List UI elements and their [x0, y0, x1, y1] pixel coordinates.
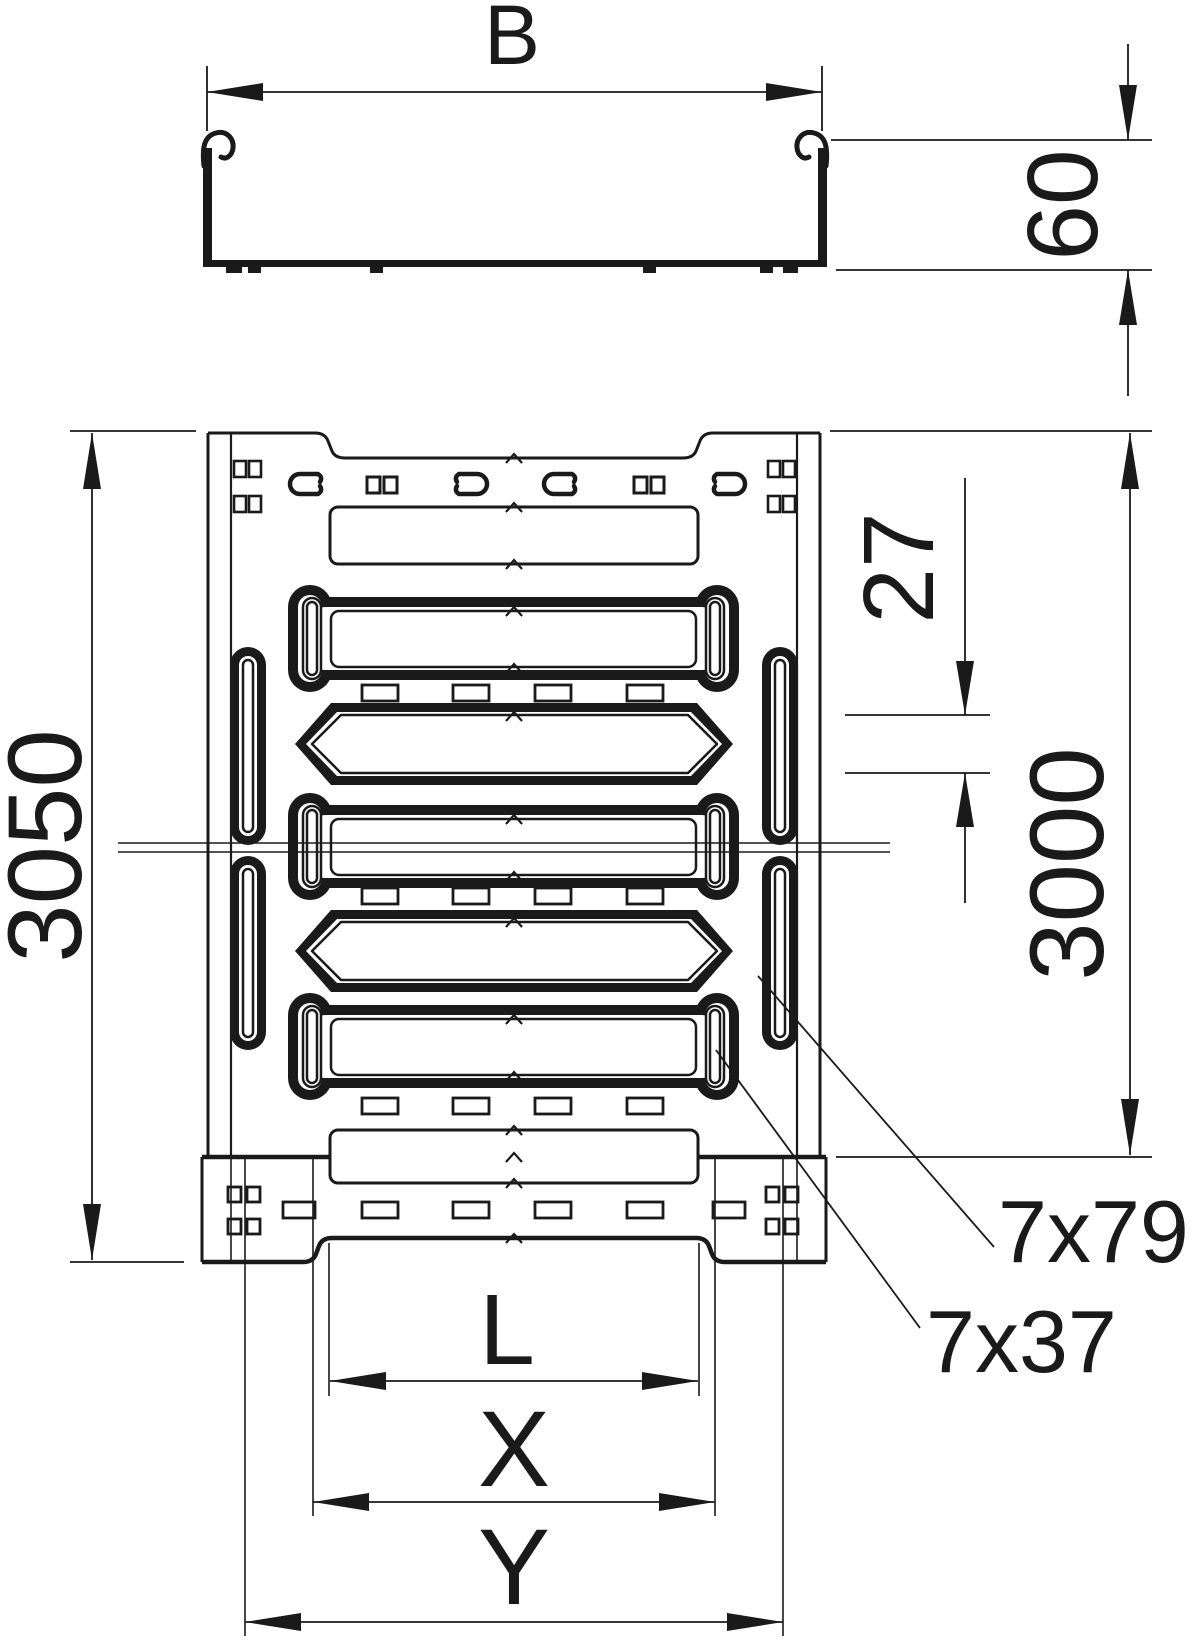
dimension-3050: 3050: [0, 431, 196, 1262]
dimension-60-label: 60: [1007, 149, 1119, 260]
plan-top-slot: [330, 507, 698, 564]
dimension-b: B: [207, 0, 822, 131]
callout-7x79-label: 7x79: [998, 1182, 1189, 1281]
drawing-canvas: B 60: [0, 0, 1201, 1640]
plan-hexagon-row-2: [295, 910, 733, 992]
plan-dumbbell-row-2: [288, 793, 739, 900]
cross-section-view: [203, 132, 827, 273]
dimension-27: 27: [843, 478, 990, 903]
plan-dumbbell-row-3: [288, 993, 739, 1100]
dimension-l-label: L: [479, 1274, 535, 1386]
section-bottom: [203, 260, 827, 267]
dimension-y-label: Y: [478, 1506, 550, 1627]
section-feet: [226, 267, 798, 273]
dimension-3050-label: 3050: [0, 729, 104, 963]
technical-drawing: B 60: [0, 0, 1201, 1640]
plan-hexagon-row-1: [295, 703, 733, 785]
plan-bottom-slot: [330, 1130, 698, 1183]
callout-7x79: 7x79: [758, 976, 1189, 1281]
dimension-l: L: [329, 1243, 699, 1396]
dimension-3000-label: 3000: [1009, 747, 1126, 981]
dimension-b-label: B: [484, 0, 540, 82]
plan-tab-slots: [290, 474, 745, 494]
plan-view: [118, 433, 890, 1262]
dimension-27-label: 27: [843, 512, 955, 623]
plan-dumbbell-row-1: [288, 585, 739, 692]
dimension-60: 60: [831, 44, 1152, 396]
plan-coupler: [202, 1157, 826, 1262]
dimension-x-label: X: [478, 1388, 550, 1509]
callout-7x37-label: 7x37: [926, 1292, 1117, 1391]
